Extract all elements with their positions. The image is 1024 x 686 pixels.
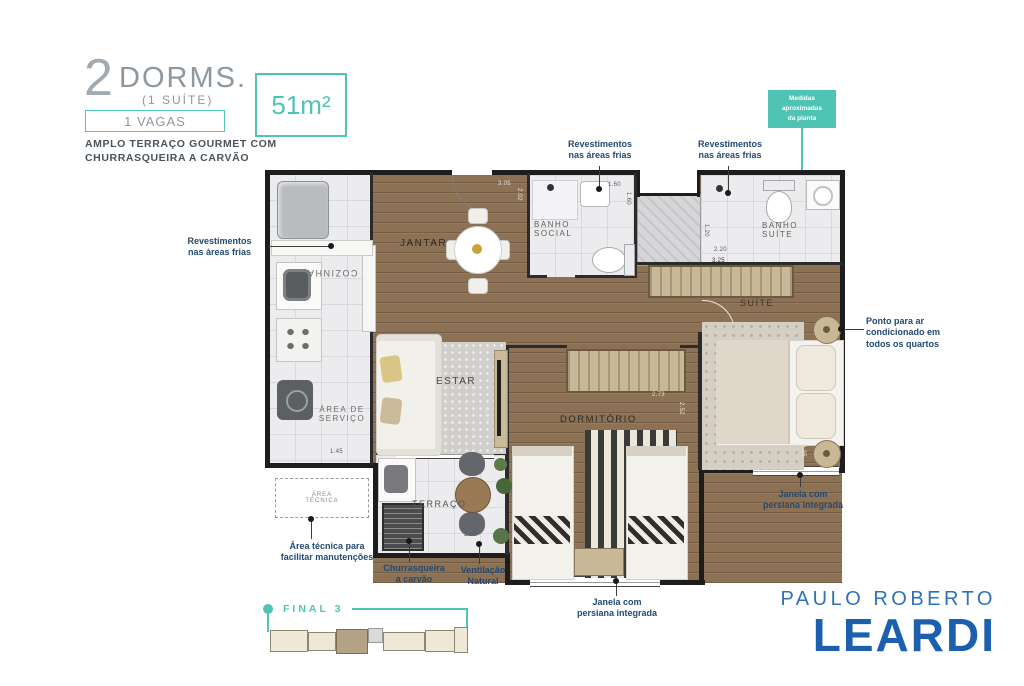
label-estar: ESTAR (436, 376, 476, 387)
stove-burners (283, 325, 313, 353)
fruit-bowl (472, 244, 482, 254)
leader-dot-janela-suite (797, 472, 803, 478)
terraco-sink-basin (384, 465, 408, 493)
dim-jantar-h: 2.02 (516, 188, 522, 201)
bed-single-left (512, 446, 574, 580)
annotation-revestimentos-left: Revestimentos nas áreas frias (172, 236, 267, 259)
wardrobe-dormitorio (566, 349, 686, 393)
leader-ponto-ar (843, 329, 864, 330)
area-label: 51m² (271, 90, 330, 121)
dorms-label: DORMS. (119, 62, 247, 95)
toilet-social-bowl (592, 247, 626, 273)
plant-1 (494, 458, 507, 471)
brand-line1: PAULO ROBERTO (760, 588, 996, 611)
label-dormitorio: DORMITÓRIO (560, 414, 637, 425)
label-servico: ÁREA DE SERVIÇO (316, 405, 368, 423)
dim-terraco-w: 2.40 (464, 532, 477, 538)
leader-dot-revest-top-right (725, 190, 731, 196)
leader-dot-revest-left (328, 243, 334, 249)
shaft-notch (640, 170, 697, 193)
dim-banho-social-h: 1.60 (625, 192, 631, 205)
plant-2 (496, 478, 512, 494)
dim-banho-social-w: 1.60 (608, 182, 621, 188)
sink-social (580, 181, 610, 207)
annotation-revestimentos-top-left: Revestimentos nas áreas frias (550, 139, 650, 162)
bed-double-pillow-1 (796, 345, 836, 391)
label-terraco: TERRAÇO (412, 499, 467, 509)
closet-suite (648, 265, 794, 298)
dining-chair-bottom (468, 278, 488, 294)
area-badge: 51m² (255, 73, 347, 137)
area-tecnica-box: ÁREA TÉCNICA (275, 478, 369, 518)
toilet-suite-tank (763, 180, 795, 191)
lamp-top (823, 326, 830, 333)
dim-jantar-w: 3.05 (498, 181, 511, 187)
wall-cozinha-top (370, 173, 373, 245)
floorplan-page: 2 DORMS. (1 SUÍTE) 1 VAGAS AMPLO TERRAÇO… (0, 0, 1024, 686)
wall-cozinha-bottom (370, 330, 373, 465)
keyplan-unit (454, 627, 468, 653)
dim-servico-w: 1.45 (330, 449, 343, 455)
bed-double-blanket (716, 340, 790, 444)
bed-single-left-throw (514, 516, 570, 544)
sink-suite-basin (813, 186, 833, 206)
wall-shaft-top (637, 193, 700, 196)
bed-single-right-throw (628, 516, 684, 544)
sofa-pillow-1 (379, 355, 402, 384)
plan-disclaimer-badge: Medidas aproximadas da planta (768, 90, 836, 128)
suite-label: (1 SUÍTE) (142, 93, 213, 107)
wall-banho-social-left (527, 173, 530, 278)
leader-dot-churrasqueira (406, 538, 412, 544)
keyplan-unit (425, 630, 455, 652)
dim-dorm-h: 2.52 (678, 402, 684, 415)
wall-top-right (697, 170, 845, 175)
keyplan-line-left (267, 614, 269, 632)
vagas-badge: 1 VAGAS (85, 110, 225, 132)
keyplan-unit-highlighted (336, 629, 368, 654)
dim-banho-suite-w: 2.20 (714, 247, 727, 253)
dim-dorm-w: 2.73 (652, 392, 665, 398)
leader-churrasqueira (409, 541, 410, 562)
leader-revest-left (268, 246, 330, 247)
annotation-revestimentos-top-right: Revestimentos nas áreas frias (680, 139, 780, 162)
wall-banho-social-bottom-a (527, 275, 547, 278)
annotation-area-tecnica: Área técnica para facilitar manutenções (262, 541, 392, 564)
leader-dot-ponto-ar (838, 326, 844, 332)
dorms-number: 2 (84, 52, 113, 104)
label-banho-social: BANHO SOCIAL (534, 220, 572, 238)
washer-door (286, 390, 308, 412)
leader-revest-top-left (599, 166, 600, 188)
keyplan-unit (308, 632, 336, 651)
leader-revest-top-right (728, 166, 729, 192)
annotation-churrasqueira: Churrasqueira a carvão (372, 563, 456, 586)
brand-line2: LEARDI (760, 611, 996, 659)
wall-servico-bottom (265, 463, 377, 468)
kitchen-counter (271, 240, 373, 256)
dim-banho-suite-h: 1.20 (703, 224, 709, 237)
annotation-ventilacao: Ventilação Natural (446, 565, 520, 588)
wall-dorm-top-b (680, 345, 700, 348)
keyplan-unit (270, 630, 308, 652)
annotation-janela-dorm: Janela com persiana integrada (562, 597, 672, 620)
area-tecnica-box-label: ÁREA TÉCNICA (305, 492, 338, 504)
toilet-suite-bowl (766, 191, 792, 223)
toilet-social-tank (624, 244, 635, 276)
wall-terraco-bottom (373, 553, 510, 558)
annotation-janela-suite: Janela com persiana integrada (748, 489, 858, 512)
bed-single-right (626, 446, 688, 580)
keyplan-unit (383, 632, 425, 651)
header-subtitle: AMPLO TERRAÇO GOURMET COM CHURRASQUEIRA … (85, 137, 277, 165)
keyplan-core (368, 628, 383, 643)
shower-social (532, 180, 578, 220)
keyplan-dot (263, 604, 273, 614)
shower-head-social (547, 184, 554, 191)
bed-single-right-head (626, 446, 686, 456)
vagas-label: 1 VAGAS (124, 114, 186, 129)
bed-double-pillow-2 (796, 393, 836, 439)
passthrough-counter (362, 245, 376, 332)
label-banho-suite: BANHO SUÍTE (762, 221, 798, 239)
shaft (637, 194, 701, 266)
sofa-pillow-2 (379, 397, 402, 425)
leader-dot-ventilacao (476, 541, 482, 547)
dim-suite-h: 2.35 (800, 444, 806, 457)
keyplan-line-top (352, 608, 467, 610)
label-cozinha: COZINHA (300, 268, 364, 278)
leader-dot-revest-top-left (596, 186, 602, 192)
wall-dorm-top-a (505, 345, 567, 348)
annotation-ponto-ar: Ponto para ar condicionado em todos os q… (866, 316, 988, 350)
leader-dot-area-tecnica (308, 516, 314, 522)
leader-janela-dorm (616, 582, 617, 596)
brand-logo: PAULO ROBERTO LEARDI (760, 588, 996, 659)
wall-dorm-right (699, 468, 704, 585)
wall-left (265, 170, 270, 468)
plan-disclaimer-text: Medidas aproximadas da planta (782, 94, 822, 123)
dining-chair-top (468, 208, 488, 224)
keyplan-building (270, 626, 466, 656)
terraco-chair-top (459, 452, 485, 476)
leader-dot-janela-dorm (613, 578, 619, 584)
label-jantar: JANTAR (400, 238, 447, 249)
sofa (376, 334, 442, 456)
bed-single-left-head (512, 446, 572, 456)
dim-closet-w: 3.25 (712, 258, 725, 264)
label-suite: SUÍTE (740, 298, 774, 308)
shower-head-suite (716, 185, 723, 192)
dim-estar-h: 4.90 (483, 408, 489, 421)
fridge (277, 181, 329, 239)
dorm-nightstand (574, 548, 624, 576)
lamp-bottom (823, 450, 830, 457)
tv (497, 360, 501, 436)
keyplan-final-label: FINAL 3 (283, 603, 343, 615)
plant-3 (493, 528, 509, 544)
